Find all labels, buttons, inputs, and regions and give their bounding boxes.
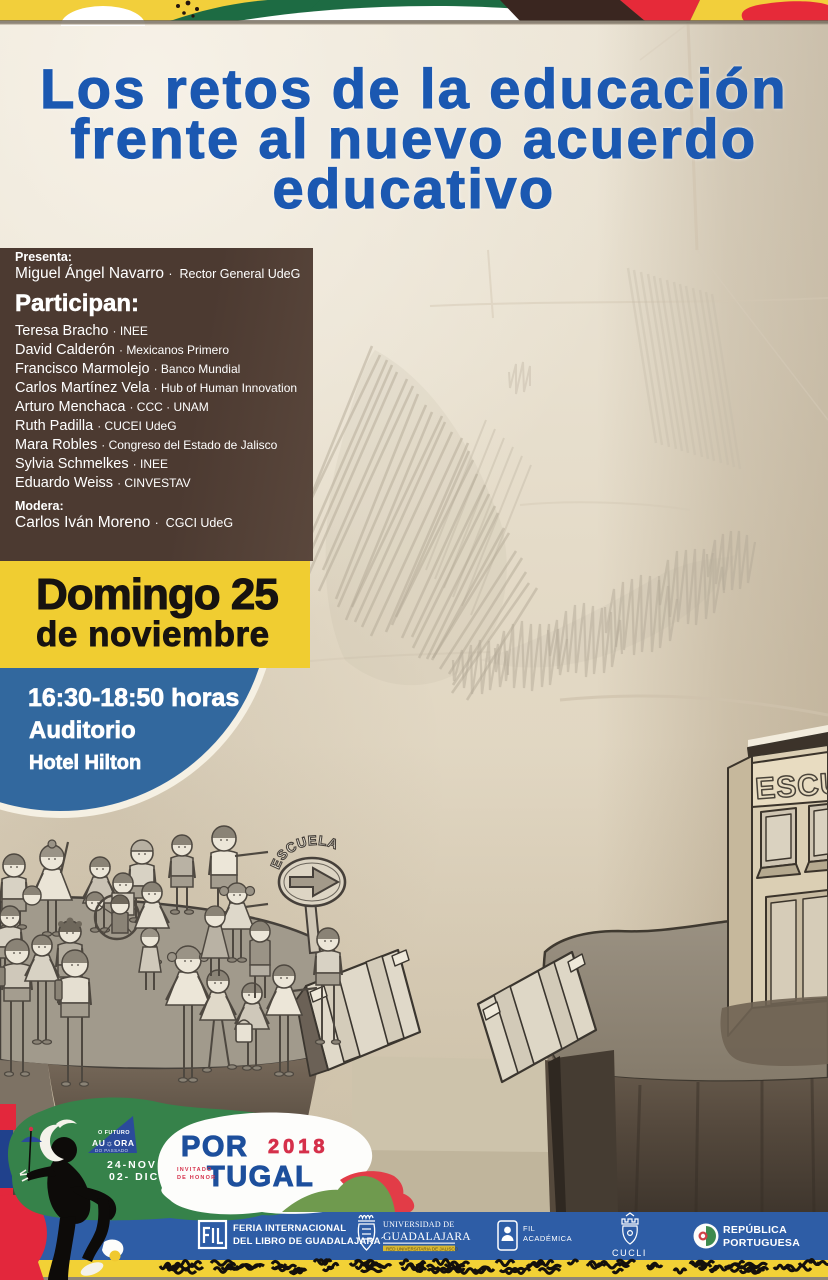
svg-text:AU☼ORA: AU☼ORA [92,1138,135,1148]
svg-text:GUADALAJARA: GUADALAJARA [383,1231,471,1243]
svg-text:02- DIC: 02- DIC [109,1171,159,1183]
svg-text:RED UNIVERSITARIA DE JALISCO: RED UNIVERSITARIA DE JALISCO [386,1247,459,1252]
svg-text:2018: 2018 [268,1136,329,1158]
svg-text:POR: POR [181,1131,248,1163]
svg-text:REPÚBLICA: REPÚBLICA [723,1223,787,1236]
svg-text:TUGAL: TUGAL [207,1161,314,1193]
svg-text:DE HONOR: DE HONOR [177,1175,216,1181]
svg-text:FIL: FIL [523,1224,535,1233]
svg-text:DEL LIBRO DE GUADALAJARA´: DEL LIBRO DE GUADALAJARA´ [233,1236,384,1247]
svg-text:DO PASSADO: DO PASSADO [95,1148,129,1153]
svg-text:ACADÉMICA: ACADÉMICA [523,1234,572,1243]
svg-text:FERIA INTERNACIONAL: FERIA INTERNACIONAL [233,1223,346,1234]
svg-text:24-NOV: 24-NOV [107,1159,157,1171]
svg-text:PORTUGUESA: PORTUGUESA [723,1237,800,1249]
svg-text:CUCLI: CUCLI [612,1248,647,1258]
svg-text:O FUTURO: O FUTURO [98,1130,130,1136]
svg-text:INVITADO: INVITADO [177,1167,212,1173]
svg-text:UNIVERSIDAD DE: UNIVERSIDAD DE [383,1220,455,1229]
